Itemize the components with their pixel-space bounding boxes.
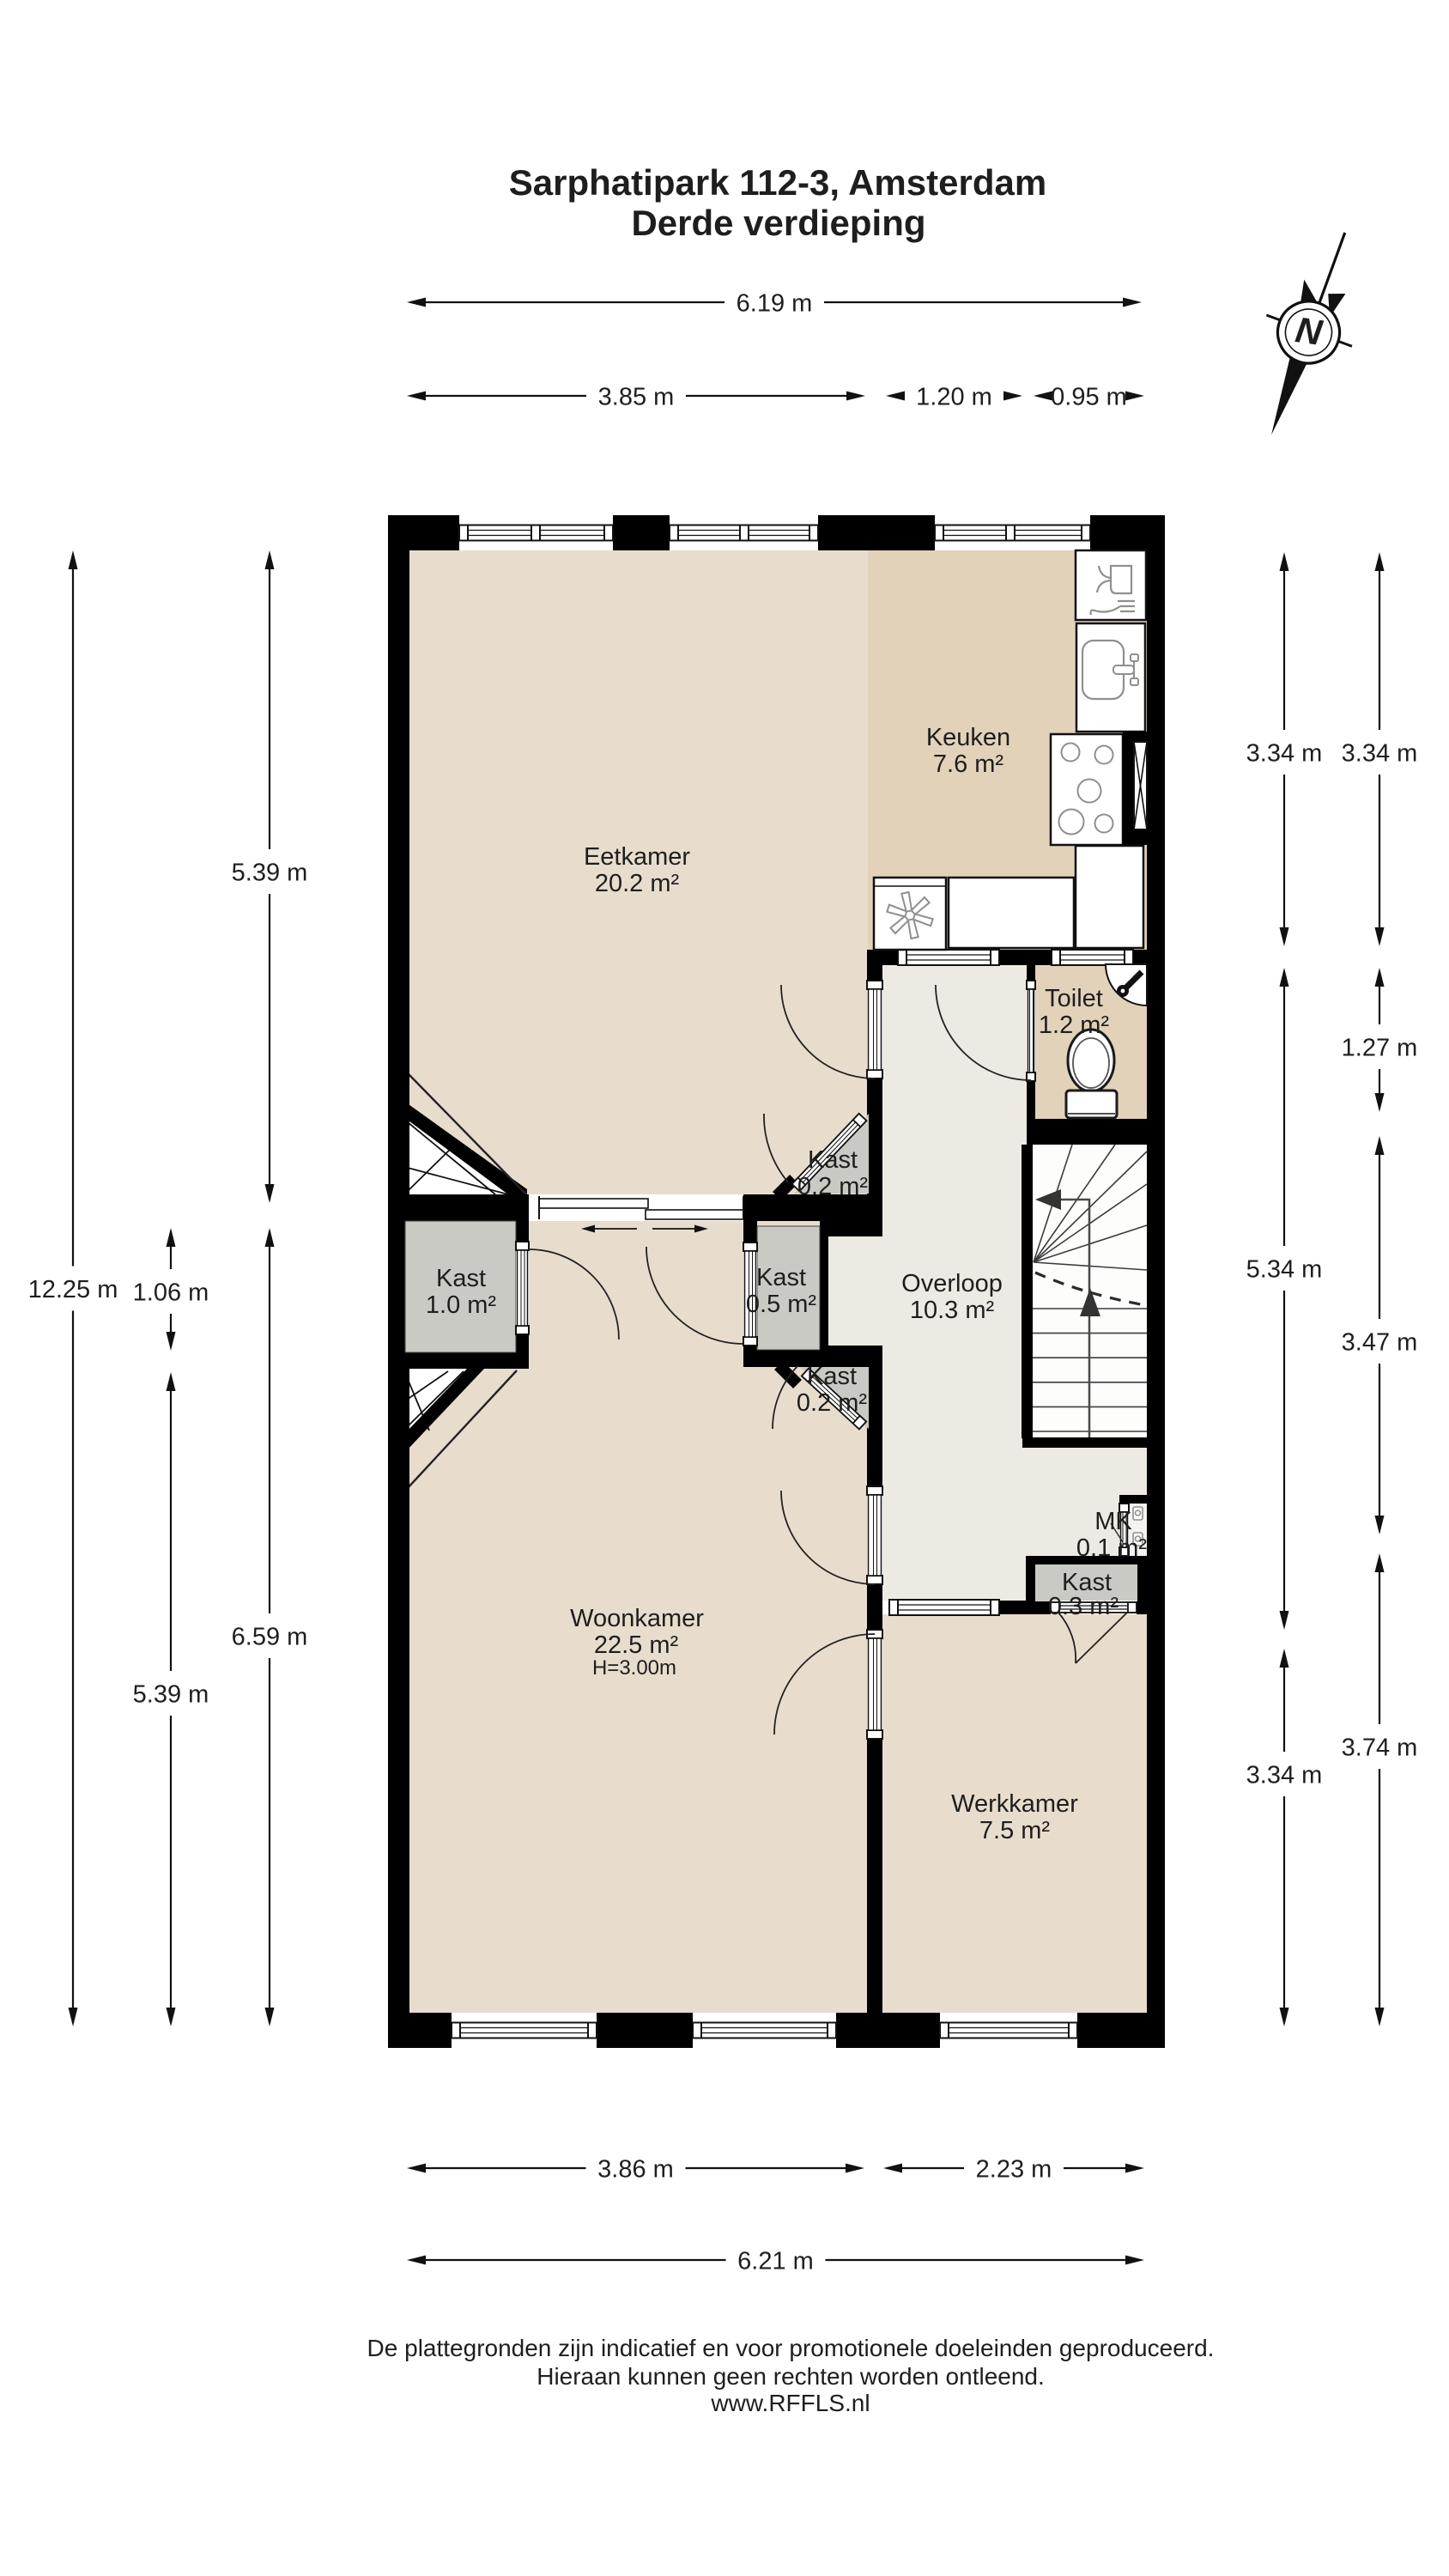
svg-text:Overloop: Overloop: [901, 1270, 1003, 1297]
svg-text:22.5 m²: 22.5 m²: [594, 1631, 679, 1659]
svg-text:Sarphatipark 112-3, Amsterdam: Sarphatipark 112-3, Amsterdam: [509, 162, 1046, 203]
svg-text:0.95 m: 0.95 m: [1051, 384, 1127, 411]
svg-text:De plattegronden zijn indicati: De plattegronden zijn indicatief en voor…: [367, 2335, 1215, 2361]
svg-text:1.20 m: 1.20 m: [916, 384, 992, 411]
svg-text:0.2 m²: 0.2 m²: [797, 1389, 868, 1417]
svg-text:3.74 m: 3.74 m: [1342, 1735, 1418, 1762]
svg-text:Werkkamer: Werkkamer: [951, 1790, 1078, 1818]
svg-text:Kast: Kast: [807, 1363, 857, 1390]
svg-text:6.59 m: 6.59 m: [232, 1624, 308, 1651]
svg-text:3.47 m: 3.47 m: [1342, 1329, 1418, 1357]
svg-text:Kast: Kast: [808, 1146, 858, 1174]
svg-text:Derde verdieping: Derde verdieping: [631, 203, 925, 243]
svg-text:0.3 m²: 0.3 m²: [1048, 1593, 1119, 1620]
svg-text:3.85 m: 3.85 m: [598, 384, 675, 411]
svg-text:6.21 m: 6.21 m: [737, 2248, 814, 2275]
svg-text:7.5 m²: 7.5 m²: [979, 1817, 1051, 1844]
svg-text:1.0 m²: 1.0 m²: [426, 1291, 497, 1319]
svg-text:20.2 m²: 20.2 m²: [595, 870, 680, 897]
svg-text:1.06 m: 1.06 m: [133, 1279, 209, 1307]
svg-text:0.5 m²: 0.5 m²: [746, 1291, 817, 1318]
svg-text:Keuken: Keuken: [926, 724, 1010, 751]
svg-text:H=3.00m: H=3.00m: [592, 1656, 676, 1680]
svg-text:Eetkamer: Eetkamer: [584, 843, 690, 871]
svg-text:Hieraan kunnen geen rechten wo: Hieraan kunnen geen rechten worden ontle…: [537, 2363, 1045, 2390]
svg-text:5.39 m: 5.39 m: [232, 860, 308, 887]
svg-text:1.27 m: 1.27 m: [1342, 1035, 1418, 1062]
svg-text:3.34 m: 3.34 m: [1342, 740, 1418, 768]
svg-text:6.19 m: 6.19 m: [737, 290, 813, 318]
svg-text:3.34 m: 3.34 m: [1246, 1762, 1323, 1789]
svg-text:Woonkamer: Woonkamer: [570, 1605, 704, 1632]
svg-text:3.34 m: 3.34 m: [1246, 740, 1323, 768]
svg-text:10.3 m²: 10.3 m²: [910, 1297, 995, 1324]
svg-text:www.RFFLS.nl: www.RFFLS.nl: [710, 2390, 870, 2416]
svg-text:1.2 m²: 1.2 m²: [1039, 1012, 1110, 1039]
svg-text:7.6 m²: 7.6 m²: [933, 750, 1004, 778]
svg-text:3.86 m: 3.86 m: [597, 2156, 674, 2184]
svg-text:Toilet: Toilet: [1045, 985, 1103, 1012]
svg-text:12.25 m: 12.25 m: [28, 1276, 118, 1303]
svg-text:2.23 m: 2.23 m: [976, 2156, 1052, 2184]
svg-text:0.1 m²: 0.1 m²: [1076, 1534, 1148, 1562]
svg-text:Kast: Kast: [756, 1264, 806, 1291]
svg-text:5.34 m: 5.34 m: [1246, 1256, 1323, 1284]
svg-text:5.39 m: 5.39 m: [133, 1681, 209, 1709]
svg-text:0.2 m²: 0.2 m²: [797, 1173, 869, 1200]
svg-text:MK: MK: [1094, 1508, 1132, 1535]
svg-text:Kast: Kast: [436, 1265, 486, 1292]
